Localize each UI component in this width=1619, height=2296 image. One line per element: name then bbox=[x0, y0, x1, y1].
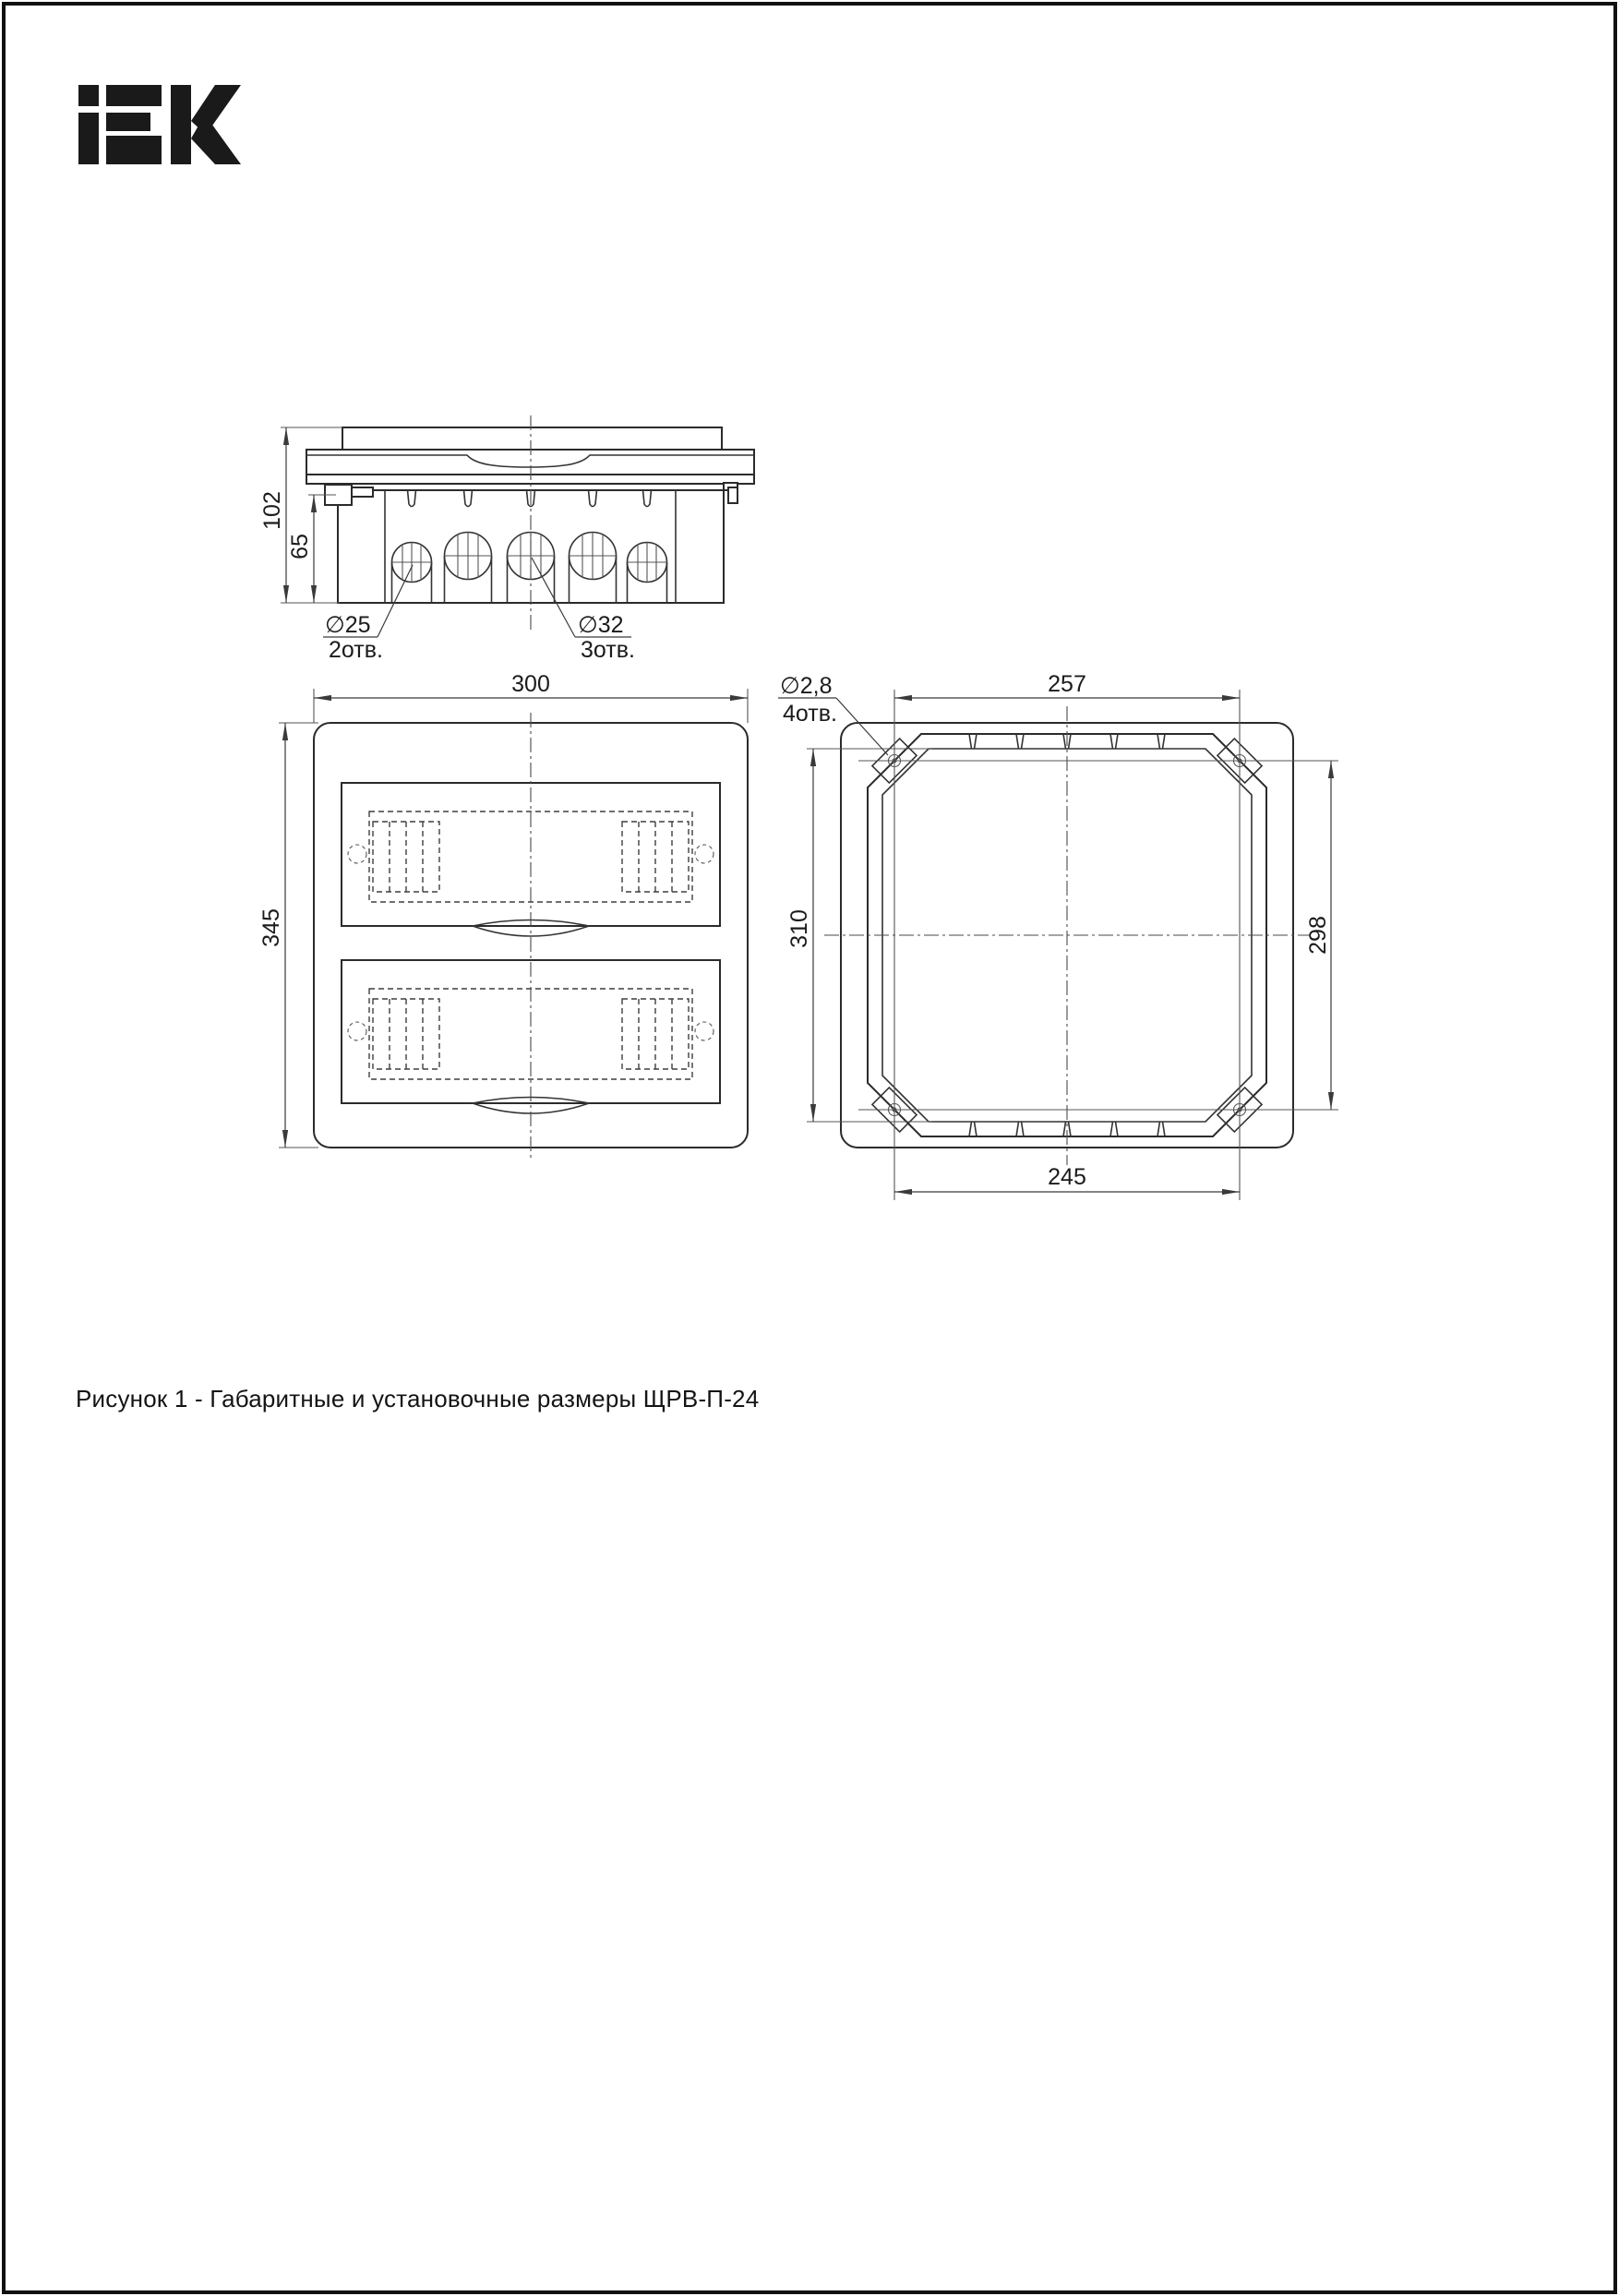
rear-dim-245: 245 bbox=[894, 1164, 1240, 1192]
rear-view: 257 310 298 245 ∅2,8 4отв. bbox=[778, 671, 1338, 1200]
side-label-d32-count: 3отв. bbox=[581, 637, 635, 663]
rear-dim-298-text: 298 bbox=[1305, 916, 1331, 955]
figure-caption: Рисунок 1 - Габаритные и установочные ра… bbox=[76, 1385, 759, 1413]
front-cover bbox=[314, 723, 748, 1148]
front-dim-300-text: 300 bbox=[511, 671, 550, 697]
technical-drawing: 102 65 ∅25 2отв. ∅32 3отв. bbox=[0, 0, 1619, 2296]
side-dim-102-text: 102 bbox=[259, 491, 285, 530]
drawing-page: 102 65 ∅25 2отв. ∅32 3отв. bbox=[0, 0, 1619, 2296]
side-label-d25-dia: ∅25 bbox=[325, 612, 371, 638]
rear-label-d28-dia: ∅2,8 bbox=[780, 673, 833, 699]
side-label-d32-dia: ∅32 bbox=[578, 612, 624, 638]
rear-dim-257: 257 bbox=[894, 671, 1240, 698]
front-dim-345: 345 bbox=[258, 723, 318, 1148]
rear-dim-310: 310 bbox=[786, 749, 813, 1122]
side-view: 102 65 ∅25 2отв. ∅32 3отв. bbox=[259, 415, 754, 663]
rear-dim-310-text: 310 bbox=[786, 909, 812, 948]
side-dim-65: 65 bbox=[287, 495, 336, 603]
rear-dim-245-text: 245 bbox=[1048, 1164, 1086, 1190]
side-label-d25-count: 2отв. bbox=[329, 637, 383, 663]
side-lid-top bbox=[342, 427, 722, 450]
rear-dim-298: 298 bbox=[1305, 761, 1331, 1110]
front-dim-345-text: 345 bbox=[258, 908, 284, 947]
iek-logo bbox=[78, 85, 241, 164]
side-dim-65-text: 65 bbox=[287, 534, 313, 559]
front-view: 300 345 bbox=[258, 671, 748, 1158]
rear-label-d28-count: 4отв. bbox=[783, 701, 837, 727]
rear-dim-257-text: 257 bbox=[1048, 671, 1086, 697]
side-latch-right bbox=[724, 483, 738, 503]
